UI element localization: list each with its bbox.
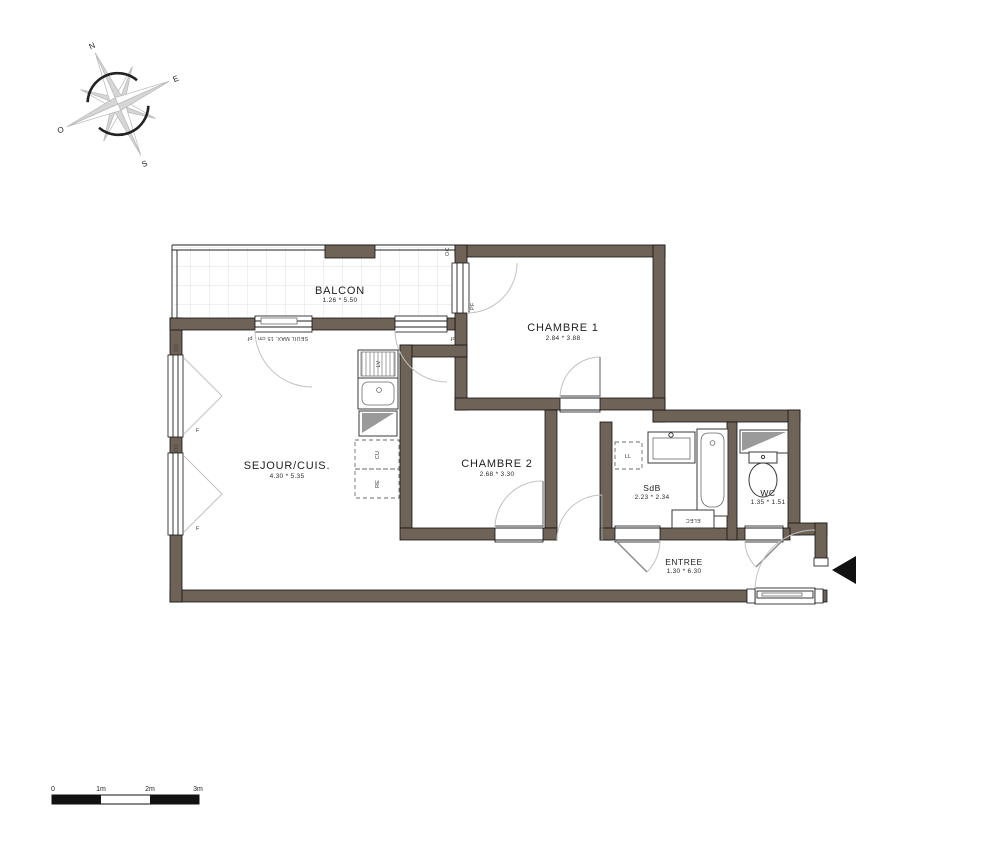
oc-label-left-wall-pier: OC [174, 443, 180, 452]
dishwasher-label: LV [376, 361, 382, 368]
entrance-jamb-right [815, 589, 823, 603]
kitchen-sink [358, 378, 398, 409]
wall-chambre1-right [653, 245, 665, 422]
entree-name: ENTREE [665, 557, 702, 567]
electrical-panel-label: ELEC [685, 517, 700, 523]
balcony-door-1 [255, 316, 312, 387]
scale-tick-1m: 1m [96, 786, 106, 793]
wall-sdb-wc-top [653, 410, 800, 422]
room-label-sejour: SEJOUR/CUIS. 4.30 * 5.35 [244, 460, 331, 480]
room-label-chambre1: CHAMBRE 1 2.84 * 3.88 [527, 322, 598, 342]
floor-plan-drawing: N E S O [0, 0, 1000, 857]
sdb-name: SdB [643, 483, 661, 493]
wall-bottom [170, 590, 827, 602]
entree-dims: 1.30 * 6.30 [667, 568, 702, 575]
sejour-dims: 4.30 * 5.35 [270, 473, 305, 480]
compass-rose: N E S O [30, 15, 207, 195]
balcony [172, 245, 455, 318]
washing-machine: LL [615, 442, 642, 469]
f-label-window2: F [196, 526, 200, 532]
balcon-name: BALCON [315, 285, 365, 297]
kitchen-fixtures: LV CU RE [355, 350, 399, 498]
refrigerator: RE [355, 469, 399, 498]
electrical-panel: ELEC [672, 510, 714, 528]
sejour-window-2 [168, 453, 222, 535]
entrance-jamb-left [747, 589, 755, 603]
wc-shelf [740, 430, 788, 453]
bathtub [697, 429, 728, 516]
room-label-sdb: SdB 2.23 * 2.34 [635, 483, 670, 501]
wc-name: WC [760, 488, 775, 498]
sdb-dims: 2.23 * 2.34 [635, 494, 670, 501]
scale-tick-3m: 3m [193, 786, 203, 793]
chambre1-name: CHAMBRE 1 [527, 322, 598, 334]
chambre2-name: CHAMBRE 2 [461, 458, 532, 470]
compass-east-label: E [171, 74, 180, 84]
wall-kitchen-divider [400, 345, 412, 528]
oc-label-balcony: OC [445, 247, 451, 256]
sejour-window-1 [168, 355, 222, 437]
chambre2-door [495, 481, 543, 542]
chambre1-dims: 2.84 * 3.88 [546, 335, 581, 342]
sejour-name: SEJOUR/CUIS. [244, 460, 331, 472]
oc-label-left-wall-top: OC [174, 343, 180, 352]
scale-tick-2m: 2m [145, 786, 155, 793]
wall-chambre2-right [545, 410, 557, 528]
bathroom-fixtures: LL ELEC [615, 429, 788, 528]
seuil-note: SEUIL MAX. 15 cm [258, 335, 309, 341]
balcony-wall-stub [325, 245, 375, 258]
floor-plan-page: N E S O [0, 0, 1000, 857]
pf-label-chambre1-window: PF [470, 302, 476, 310]
wc-dims: 1.35 * 1.51 [751, 499, 786, 506]
washing-machine-label: LL [625, 454, 632, 460]
wall-chambre1-top [455, 245, 665, 257]
balcony-tile-floor [174, 247, 453, 317]
cooking-unit-label: CU [375, 451, 381, 459]
entrance-arrow-icon [832, 556, 856, 584]
refrigerator-label: RE [375, 480, 381, 488]
chambre2-dims: 2.68 * 3.30 [480, 471, 515, 478]
chambre1-window [452, 263, 517, 313]
cooktop [359, 411, 397, 436]
compass-south-label: S [140, 159, 149, 169]
chambre1-door [560, 357, 600, 412]
scale-tick-0: 0 [51, 786, 55, 793]
entree-sejour-door [557, 495, 602, 540]
pf-label-balcony-door2: pf [450, 335, 455, 341]
pf-label-balcony-door1: pf [247, 335, 252, 341]
room-label-chambre2: CHAMBRE 2 2.68 * 3.30 [461, 458, 532, 478]
entry-stub-jamb [814, 558, 828, 566]
f-label-window1: F [196, 428, 200, 434]
sdb-door [615, 526, 660, 572]
compass-north-label: N [88, 41, 97, 52]
compass-west-label: O [56, 125, 65, 136]
cooking-unit: CU [355, 440, 399, 469]
wall-right-outer [788, 410, 800, 535]
balcon-dims: 1.26 * 5.50 [323, 297, 358, 304]
dishwasher: LV [358, 350, 398, 378]
washbasin [648, 432, 695, 463]
scale-bar: 0 1m 2m 3m [51, 786, 203, 804]
room-label-entree: ENTREE 1.30 * 6.30 [665, 557, 702, 575]
wc-door [745, 526, 783, 567]
